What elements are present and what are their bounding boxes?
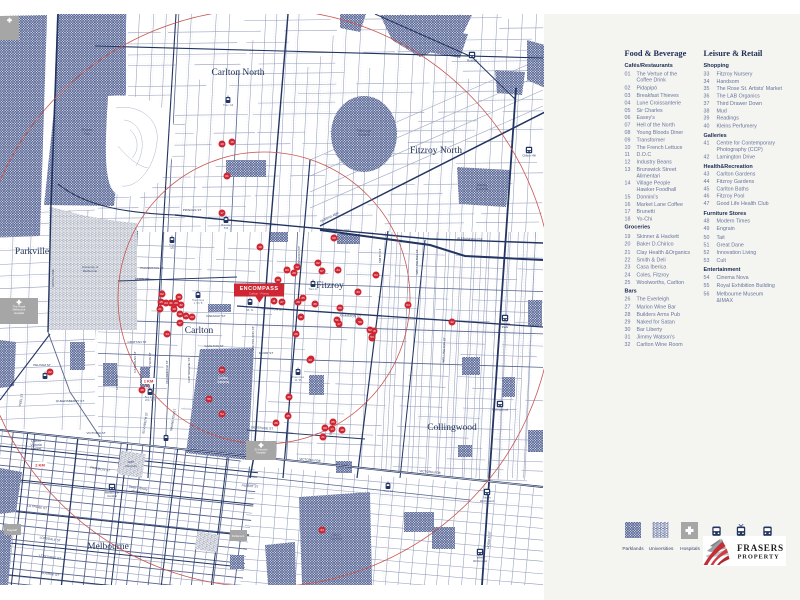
- svg-text:18: 18: [625, 217, 631, 223]
- svg-text:CARLTON ST: CARLTON ST: [204, 344, 223, 348]
- svg-text:Woolworths, Carlton: Woolworths, Carlton: [637, 280, 685, 286]
- svg-text:Coffee Drink: Coffee Drink: [637, 78, 667, 84]
- svg-text:Easey's: Easey's: [637, 115, 656, 121]
- svg-text:17: 17: [220, 211, 224, 215]
- svg-text:47: 47: [178, 321, 182, 325]
- svg-text:44: 44: [704, 179, 710, 185]
- svg-text:Third Drawer Down: Third Drawer Down: [717, 101, 763, 107]
- svg-text:Marion Wine Bar: Marion Wine Bar: [637, 304, 677, 310]
- svg-text:53: 53: [704, 258, 710, 264]
- svg-text:35: 35: [301, 296, 305, 300]
- svg-text:51: 51: [335, 318, 339, 322]
- svg-text:Carlton Gardens: Carlton Gardens: [717, 172, 756, 178]
- svg-text:Fitzroy North: Fitzroy North: [410, 146, 462, 156]
- svg-text:29: 29: [625, 319, 631, 325]
- svg-text:Bars: Bars: [625, 288, 637, 294]
- svg-text:02: 02: [625, 85, 631, 91]
- svg-text:32: 32: [179, 303, 183, 307]
- svg-text:Naked for Satan: Naked for Satan: [637, 319, 675, 325]
- svg-text:25: 25: [625, 280, 631, 286]
- svg-text:50: 50: [358, 320, 362, 324]
- svg-text:Alimentari: Alimentari: [637, 173, 661, 179]
- svg-text:Sir Charles: Sir Charles: [637, 108, 664, 114]
- svg-text:Market: Market: [31, 447, 41, 451]
- svg-text:Central: Central: [107, 494, 117, 498]
- svg-text:Breakfast Thieves: Breakfast Thieves: [637, 93, 680, 99]
- svg-text:PALMERSTON ST: PALMERSTON ST: [140, 266, 164, 270]
- svg-text:04: 04: [406, 303, 410, 307]
- svg-text:Groceries: Groceries: [625, 225, 651, 231]
- svg-text:University: University: [125, 464, 138, 468]
- svg-text:Carlton Wine Room: Carlton Wine Room: [637, 342, 684, 348]
- svg-text:Flagstaff: Flagstaff: [7, 528, 17, 532]
- svg-text:1/6: 1/6: [170, 246, 174, 250]
- svg-text:2 KM: 2 KM: [35, 463, 45, 468]
- svg-text:12: 12: [295, 265, 299, 269]
- svg-text:54: 54: [704, 275, 710, 281]
- svg-text:13: 13: [625, 167, 631, 173]
- svg-text:41: 41: [704, 141, 710, 147]
- svg-text:22: 22: [48, 370, 52, 374]
- svg-text:Good Life Health Club: Good Life Health Club: [717, 201, 769, 207]
- svg-text:Hospital: Hospital: [14, 311, 24, 315]
- svg-text:Hawker Foodhall: Hawker Foodhall: [637, 187, 677, 193]
- svg-text:QUEENSBERRY ST: QUEENSBERRY ST: [56, 399, 85, 403]
- svg-text:25: 25: [184, 314, 188, 318]
- svg-text:52: 52: [704, 250, 710, 256]
- svg-text:Cinema Nova: Cinema Nova: [717, 275, 749, 281]
- svg-text:Brunswick Street: Brunswick Street: [637, 167, 677, 173]
- svg-text:Leisure & Retail: Leisure & Retail: [704, 49, 764, 58]
- svg-text:27: 27: [625, 304, 631, 310]
- svg-text:34: 34: [336, 268, 340, 272]
- svg-text:Mud: Mud: [717, 108, 727, 114]
- svg-text:Carlton: Carlton: [185, 326, 214, 336]
- svg-text:Fitzroy Gardens: Fitzroy Gardens: [717, 179, 755, 185]
- svg-text:47: 47: [704, 201, 710, 207]
- svg-text:1 KM: 1 KM: [144, 379, 154, 384]
- svg-text:09: 09: [323, 426, 327, 430]
- svg-text:546: 546: [224, 226, 229, 230]
- svg-text:Cult: Cult: [717, 258, 727, 264]
- svg-text:08: 08: [625, 130, 631, 136]
- svg-text:Photography (CCP): Photography (CCP): [717, 147, 763, 153]
- svg-text:Collingwood: Collingwood: [492, 407, 509, 411]
- svg-text:11: 11: [272, 299, 275, 303]
- svg-text:22: 22: [625, 257, 631, 263]
- svg-text:15: 15: [159, 300, 163, 304]
- svg-text:Universities: Universities: [649, 546, 674, 552]
- svg-text:Hospitals: Hospitals: [680, 546, 700, 552]
- svg-text:14: 14: [165, 332, 169, 336]
- svg-text:Fitzroy: Fitzroy: [316, 281, 344, 291]
- svg-text:RATHDOWNE ST: RATHDOWNE ST: [187, 357, 191, 382]
- svg-text:LYGON ST: LYGON ST: [115, 374, 119, 390]
- svg-text:45: 45: [286, 414, 290, 418]
- svg-text:01: 01: [225, 174, 229, 178]
- svg-text:Smith & Deli: Smith & Deli: [637, 257, 666, 263]
- svg-text:Skinner & Hackett: Skinner & Hackett: [637, 234, 680, 240]
- svg-text:Royal Exhibition Building: Royal Exhibition Building: [717, 283, 775, 289]
- svg-text:07: 07: [625, 123, 631, 129]
- svg-text:The Vertue of the: The Vertue of the: [637, 71, 678, 77]
- svg-text:03: 03: [285, 268, 289, 272]
- svg-text:42: 42: [704, 154, 710, 160]
- svg-text:31: 31: [169, 301, 173, 305]
- svg-text:Health&Recreation: Health&Recreation: [704, 164, 754, 170]
- svg-text:PROPERTY: PROPERTY: [738, 553, 780, 560]
- svg-text:23: 23: [625, 265, 631, 271]
- svg-text:27: 27: [280, 300, 284, 304]
- svg-text:42: 42: [450, 320, 454, 324]
- svg-text:20: 20: [625, 241, 631, 247]
- svg-text:PELHAM ST: PELHAM ST: [33, 363, 51, 367]
- svg-text:GRATTAN ST: GRATTAN ST: [127, 340, 146, 344]
- svg-text:Gardens: Gardens: [217, 380, 230, 384]
- svg-text:FRASERS: FRASERS: [737, 543, 784, 553]
- svg-text:Clifton Hill: Clifton Hill: [522, 153, 536, 157]
- svg-text:VICTORIA ST: VICTORIA ST: [86, 431, 105, 435]
- svg-text:53: 53: [370, 335, 374, 339]
- svg-text:Richmond: Richmond: [480, 499, 494, 503]
- svg-text:10: 10: [220, 142, 224, 146]
- svg-text:Furniture Stores: Furniture Stores: [704, 211, 747, 217]
- svg-text:54: 54: [220, 412, 224, 416]
- svg-text:06: 06: [625, 115, 631, 121]
- svg-text:&IMAX: &IMAX: [717, 298, 734, 304]
- svg-text:Hospital: Hospital: [256, 452, 265, 455]
- svg-text:Market Lane Coffee: Market Lane Coffee: [637, 202, 683, 208]
- svg-text:Carlton Baths: Carlton Baths: [717, 186, 749, 192]
- svg-text:44: 44: [320, 528, 324, 532]
- svg-text:200, 207: 200, 207: [145, 398, 156, 402]
- svg-text:Entertainment: Entertainment: [704, 267, 741, 273]
- svg-text:29: 29: [292, 271, 296, 275]
- svg-text:CARDIGAN ST: CARDIGAN ST: [133, 351, 137, 372]
- svg-text:The LAB Organics: The LAB Organics: [717, 94, 761, 100]
- svg-text:Builders Arms Pub: Builders Arms Pub: [637, 312, 681, 318]
- svg-text:01: 01: [625, 71, 631, 77]
- svg-text:Melbourne: Melbourne: [83, 269, 98, 273]
- svg-text:24: 24: [625, 273, 631, 279]
- svg-text:Parliament: Parliament: [232, 534, 245, 538]
- svg-text:45: 45: [704, 186, 710, 192]
- svg-text:Fitzroy Pool: Fitzroy Pool: [717, 194, 745, 200]
- svg-text:Kleins Perfumery: Kleins Perfumery: [717, 123, 758, 129]
- svg-text:Clay Health &Organics: Clay Health &Organics: [637, 250, 691, 256]
- svg-text:28: 28: [625, 312, 631, 318]
- svg-text:46: 46: [704, 194, 710, 200]
- svg-text:Melbourne Museum: Melbourne Museum: [717, 292, 764, 298]
- svg-text:Innovation Living: Innovation Living: [717, 250, 757, 256]
- svg-text:08: 08: [332, 236, 336, 240]
- svg-text:07: 07: [320, 269, 324, 273]
- svg-text:21: 21: [158, 307, 162, 311]
- svg-text:Parkville: Parkville: [15, 247, 49, 257]
- svg-text:40: 40: [704, 123, 710, 129]
- svg-text:32: 32: [625, 342, 631, 348]
- svg-text:02: 02: [316, 261, 320, 265]
- svg-text:52: 52: [368, 328, 372, 332]
- svg-text:Carlton North: Carlton North: [211, 68, 264, 78]
- svg-text:ELGIN ST: ELGIN ST: [135, 277, 149, 281]
- svg-text:04: 04: [625, 101, 631, 107]
- svg-text:11: 11: [625, 152, 631, 158]
- svg-text:Great Dane: Great Dane: [717, 243, 744, 249]
- svg-text:26: 26: [625, 297, 631, 303]
- svg-text:Cafés/Restaurants: Cafés/Restaurants: [625, 63, 673, 69]
- svg-text:The French Lettuce: The French Lettuce: [637, 145, 683, 151]
- svg-text:34: 34: [704, 79, 710, 85]
- svg-text:The Rose St. Artists' Market: The Rose St. Artists' Market: [717, 86, 783, 92]
- svg-text:56: 56: [704, 292, 710, 298]
- svg-text:06: 06: [338, 306, 342, 310]
- svg-text:Tram 12: Tram 12: [383, 489, 393, 493]
- svg-text:09: 09: [625, 138, 631, 144]
- svg-text:Brunetti: Brunetti: [637, 209, 655, 215]
- svg-text:56: 56: [207, 397, 211, 401]
- svg-text:MOOR ST: MOOR ST: [259, 351, 274, 355]
- svg-text:20: 20: [174, 301, 178, 305]
- svg-text:12: 12: [625, 160, 631, 166]
- svg-text:19: 19: [172, 307, 176, 311]
- svg-text:Carlton · Fitzroy: Carlton · Fitzroy: [249, 292, 269, 296]
- svg-text:Transformer: Transformer: [637, 138, 666, 144]
- svg-text:Lune Croissanterie: Lune Croissanterie: [637, 101, 682, 107]
- svg-text:D.O.C: D.O.C: [637, 152, 652, 158]
- svg-text:55: 55: [220, 368, 224, 372]
- svg-text:35: 35: [704, 86, 710, 92]
- svg-text:Village People: Village People: [637, 181, 671, 187]
- svg-text:Richmond: Richmond: [473, 559, 487, 563]
- svg-text:19: 19: [625, 234, 631, 240]
- svg-text:21: 21: [625, 250, 631, 256]
- svg-text:15: 15: [625, 195, 631, 201]
- svg-text:46: 46: [287, 395, 291, 399]
- svg-text:43: 43: [704, 172, 710, 178]
- svg-text:Hell of the North: Hell of the North: [637, 123, 675, 129]
- svg-text:SMITH ST: SMITH ST: [378, 249, 382, 264]
- svg-text:37: 37: [704, 101, 710, 107]
- svg-text:17: 17: [625, 209, 631, 215]
- svg-text:Baker D.Chirico: Baker D.Chirico: [637, 241, 674, 247]
- svg-text:26: 26: [294, 332, 298, 336]
- svg-text:Collingwood: Collingwood: [427, 423, 477, 433]
- svg-text:Donnini's: Donnini's: [637, 195, 659, 201]
- svg-text:Coles, Fitzroy: Coles, Fitzroy: [637, 273, 670, 279]
- svg-text:05: 05: [331, 420, 335, 424]
- svg-text:Gardens: Gardens: [330, 537, 343, 541]
- svg-text:41: 41: [299, 315, 303, 319]
- svg-text:Engrain: Engrain: [717, 226, 735, 232]
- svg-text:10: 10: [625, 145, 631, 151]
- svg-text:Industry Beans: Industry Beans: [637, 160, 673, 166]
- svg-text:49: 49: [704, 226, 710, 232]
- svg-text:Jimmy Watson's: Jimmy Watson's: [637, 334, 676, 340]
- svg-text:1 / 6 / 8: 1 / 6 / 8: [194, 301, 203, 305]
- svg-text:Yo-Chi: Yo-Chi: [637, 217, 653, 223]
- svg-text:Shopping: Shopping: [704, 63, 729, 69]
- svg-text:Tram 1/6: Tram 1/6: [223, 103, 234, 107]
- svg-text:39: 39: [704, 116, 710, 122]
- svg-text:Centre for Contemporary: Centre for Contemporary: [717, 141, 776, 147]
- svg-text:FARADAY ST: FARADAY ST: [207, 314, 226, 318]
- svg-text:49: 49: [178, 312, 182, 316]
- svg-text:38: 38: [704, 108, 710, 114]
- svg-text:Fitzroy Nursery: Fitzroy Nursery: [717, 71, 753, 77]
- svg-text:16: 16: [625, 202, 631, 208]
- svg-text:Melbourne: Melbourne: [87, 542, 129, 552]
- svg-text:16: 16: [230, 140, 234, 144]
- svg-text:Park: Park: [502, 325, 509, 329]
- svg-text:04: 04: [374, 273, 378, 277]
- svg-text:Modern Times: Modern Times: [717, 219, 751, 225]
- svg-text:05: 05: [625, 108, 631, 114]
- svg-text:Bar Liberty: Bar Liberty: [637, 327, 663, 333]
- svg-text:Casa Iberica: Casa Iberica: [637, 265, 667, 271]
- svg-text:Handsom: Handsom: [717, 79, 740, 85]
- svg-text:Parklands: Parklands: [622, 546, 644, 552]
- svg-text:Lamington Drive: Lamington Drive: [717, 154, 756, 160]
- svg-text:33: 33: [704, 71, 710, 77]
- svg-text:Gardens: Gardens: [476, 187, 489, 191]
- svg-text:30: 30: [276, 278, 280, 282]
- svg-text:18: 18: [340, 428, 344, 432]
- svg-text:WELLINGTON ST: WELLINGTON ST: [415, 249, 419, 274]
- svg-text:LYGON ST: LYGON ST: [148, 352, 152, 368]
- svg-text:96, 11: 96, 11: [246, 308, 254, 312]
- svg-text:Galleries: Galleries: [704, 133, 727, 139]
- svg-text:28: 28: [296, 300, 300, 304]
- svg-text:36: 36: [704, 94, 710, 100]
- svg-text:36: 36: [313, 302, 317, 306]
- svg-text:13: 13: [330, 427, 334, 431]
- svg-text:24: 24: [164, 301, 168, 305]
- svg-text:NICHOLSON ST: NICHOLSON ST: [251, 326, 255, 349]
- svg-text:28: 28: [274, 421, 278, 425]
- svg-text:33: 33: [356, 290, 360, 294]
- svg-text:Pidapipó: Pidapipó: [637, 85, 658, 91]
- svg-text:PRINCES ST: PRINCES ST: [183, 208, 202, 212]
- svg-text:14: 14: [625, 181, 631, 187]
- svg-text:31: 31: [625, 334, 631, 340]
- svg-text:02: 02: [160, 292, 164, 296]
- svg-text:43: 43: [308, 358, 312, 362]
- svg-text:Gardens: Gardens: [358, 133, 371, 137]
- svg-text:Park: Park: [84, 132, 91, 136]
- svg-text:39: 39: [177, 295, 181, 299]
- svg-text:55: 55: [704, 283, 710, 289]
- svg-text:23: 23: [190, 315, 194, 319]
- svg-text:50: 50: [704, 235, 710, 241]
- svg-text:51: 51: [704, 243, 710, 249]
- svg-text:48: 48: [704, 219, 710, 225]
- svg-text:18: 18: [258, 245, 262, 249]
- svg-text:48: 48: [140, 388, 144, 392]
- svg-text:30: 30: [625, 327, 631, 333]
- svg-text:03: 03: [625, 93, 631, 99]
- svg-text:Food & Beverage: Food & Beverage: [625, 49, 687, 58]
- svg-text:21: 21: [321, 435, 325, 439]
- svg-text:Tait: Tait: [717, 235, 726, 241]
- svg-text:ROYAL PDE: ROYAL PDE: [51, 269, 55, 286]
- svg-text:DRUMMOND ST: DRUMMOND ST: [165, 360, 169, 384]
- svg-text:Readings: Readings: [717, 116, 740, 122]
- svg-text:The Everleigh: The Everleigh: [637, 297, 670, 303]
- svg-text:Rushall: Rushall: [467, 58, 477, 62]
- svg-text:Young Bloods Diner: Young Bloods Diner: [637, 130, 684, 136]
- svg-text:11, 96: 11, 96: [294, 378, 302, 382]
